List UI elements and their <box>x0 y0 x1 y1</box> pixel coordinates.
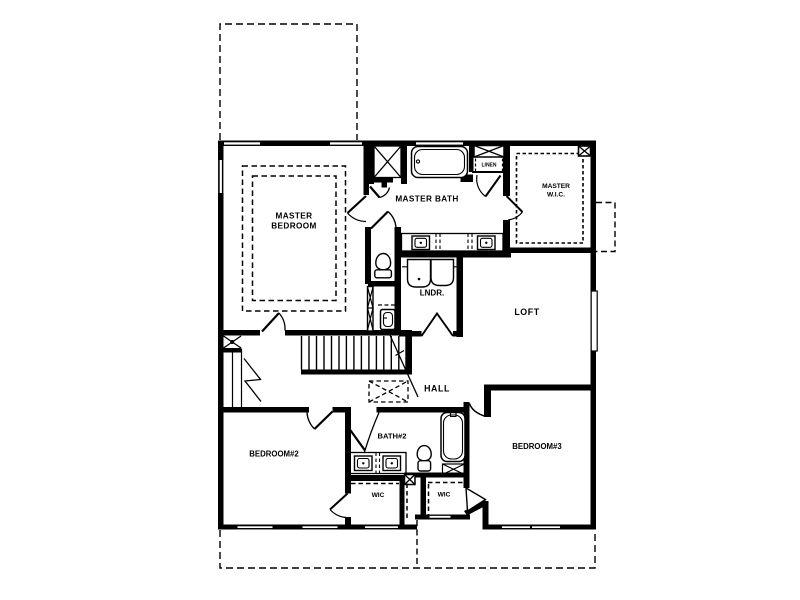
svg-text:BEDROOM#2: BEDROOM#2 <box>249 450 299 459</box>
svg-text:LOFT: LOFT <box>514 307 539 317</box>
svg-text:LINEN: LINEN <box>482 163 497 169</box>
svg-text:MASTER: MASTER <box>276 212 313 221</box>
svg-text:LNDR.: LNDR. <box>420 289 444 298</box>
svg-text:MASTER BATH: MASTER BATH <box>395 195 458 204</box>
svg-text:BEDROOM: BEDROOM <box>271 222 317 231</box>
svg-text:W.I.C.: W.I.C. <box>547 192 565 199</box>
svg-text:WIC: WIC <box>372 492 385 499</box>
svg-text:HALL: HALL <box>424 384 450 394</box>
svg-text:WIC: WIC <box>438 492 451 499</box>
svg-text:MASTER: MASTER <box>542 183 570 190</box>
svg-text:BATH#2: BATH#2 <box>378 432 407 441</box>
svg-text:BEDROOM#3: BEDROOM#3 <box>512 442 562 451</box>
